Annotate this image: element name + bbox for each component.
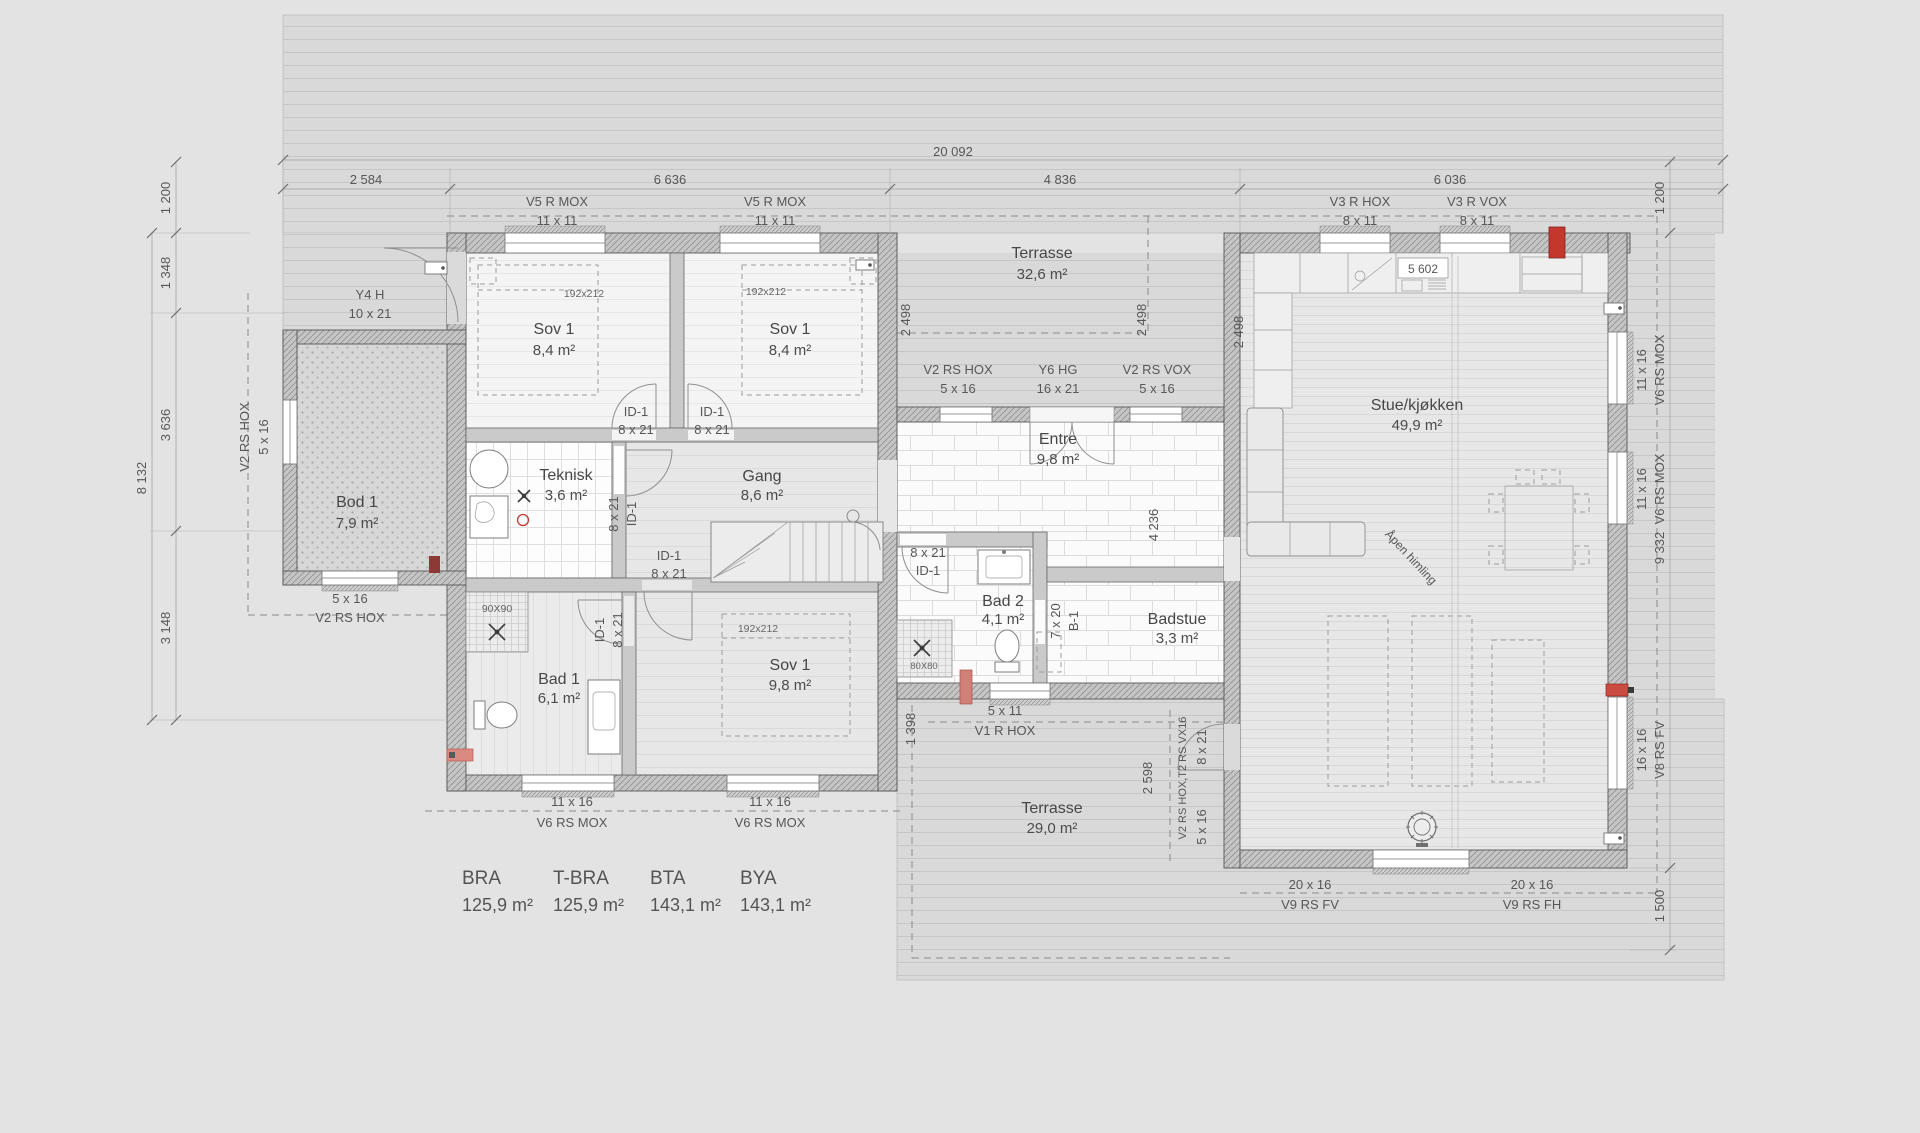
room-sov1c-name: Sov 1	[770, 657, 811, 674]
dim-left-total: 8 132	[134, 462, 149, 495]
room-sov1a-area: 8,4 m²	[533, 342, 576, 359]
label-v9fv-size: 20 x 16	[1289, 877, 1332, 892]
bed-size-sov1b: 192x212	[746, 286, 786, 298]
label-v6-1-code: V6 RS MOX	[537, 815, 608, 830]
label-t2combo-code: V2 RS HOX,T2 RS VX16	[1177, 717, 1189, 840]
label-v2hox-left-code: V2 RS HOX	[237, 402, 252, 472]
label-id1-bad2-size: 8 x 21	[910, 545, 945, 560]
sofa-bottom	[1247, 522, 1365, 556]
dim-5602: 5 602	[1408, 262, 1438, 276]
label-v5-1-size: 11 x 11	[537, 213, 578, 228]
label-v9fv-code: V9 RS FV	[1281, 897, 1339, 912]
room-stue-name: Stue/kjøkken	[1371, 397, 1463, 414]
area-table-label-bta: BTA	[650, 868, 686, 889]
label-v1-code: V1 R HOX	[975, 723, 1036, 738]
label-id1-teknisk-size: 8 x 21	[606, 496, 621, 531]
dim-left2: 1 348	[158, 257, 173, 290]
marker-red-right-wall	[1606, 684, 1628, 696]
label-id1-bad2-code: ID-1	[916, 563, 941, 578]
room-stue-area: 49,9 m²	[1392, 417, 1443, 434]
label-y4-code: Y4 H	[356, 287, 385, 302]
dim-seg2: 6 636	[654, 172, 687, 187]
label-v2hox-left-size: 5 x 16	[256, 419, 271, 454]
room-bod-name: Bod 1	[336, 494, 378, 511]
label-y6-code: Y6 HG	[1038, 362, 1077, 377]
room-bad2-name: Bad 2	[982, 593, 1024, 610]
door-b1-gap	[1035, 600, 1045, 644]
opening-gang-entre	[878, 460, 897, 532]
label-id1-teknisk-code: ID-1	[624, 502, 639, 527]
label-t2combo-size5: 5 x 16	[1194, 809, 1209, 844]
label-v3h-code: V3 R HOX	[1330, 194, 1391, 209]
room-gang-name: Gang	[742, 468, 781, 485]
area-table-value-tbra: 125,9 m²	[553, 895, 624, 915]
bed-size-sov1c: 192x212	[738, 623, 778, 635]
label-t2combo-size8: 8 x 21	[1194, 729, 1209, 764]
window-v8	[1608, 697, 1627, 789]
room-entre-area: 9,8 m²	[1037, 451, 1080, 468]
room-bad1-area: 6,1 m²	[538, 690, 581, 707]
wall-badstue-top	[1047, 567, 1224, 582]
label-id1-sov1b-code: ID-1	[700, 404, 725, 419]
label-id1-sov1a-size: 8 x 21	[618, 422, 653, 437]
wall-bedrooms-bottom	[466, 428, 878, 442]
label-id1-gang-code: ID-1	[657, 548, 682, 563]
toilet-bad2-bowl	[995, 630, 1019, 662]
teknisk-cabinet	[470, 496, 508, 538]
valve-bod	[429, 556, 440, 573]
dim-left4: 3 148	[158, 612, 173, 645]
room-entre-name: Entre	[1039, 431, 1077, 448]
label-id1-gang-size: 8 x 21	[651, 566, 686, 581]
label-v2vox-code: V2 RS VOX	[1123, 362, 1192, 377]
area-table-label-tbra: T-BRA	[553, 868, 609, 889]
label-b1-size: 7 x 20	[1048, 603, 1063, 638]
label-v9fh-code: V9 RS FH	[1503, 897, 1562, 912]
room-bad1-name: Bad 1	[538, 671, 580, 688]
dim-2498-b: 2 498	[1134, 304, 1149, 337]
room-teknisk-area: 3,6 m²	[545, 487, 588, 504]
label-v2hox-bod-size: 5 x 16	[332, 591, 367, 606]
dim-2498-a: 2 498	[898, 304, 913, 337]
label-v8-size: 16 x 16	[1634, 729, 1649, 772]
label-v6-1-size: 11 x 16	[551, 794, 593, 809]
label-v3v-size: 8 x 11	[1460, 213, 1494, 228]
area-table-label-bra: BRA	[462, 868, 501, 889]
room-badstue-name: Badstue	[1148, 611, 1207, 628]
label-v2vox-size: 5 x 16	[1139, 381, 1174, 396]
dim-seg3: 4 836	[1044, 172, 1077, 187]
label-v6-2-size: 11 x 16	[749, 794, 791, 809]
label-v3v-code: V3 R VOX	[1447, 194, 1507, 209]
wall-bod-top	[283, 330, 466, 344]
area-table-label-bya: BYA	[740, 868, 777, 889]
door-y6-gap	[1030, 407, 1114, 422]
label-v5-1-code: V5 R MOX	[526, 194, 588, 209]
label-v2hox-t-size: 5 x 16	[940, 381, 975, 396]
label-id1-bad1-code: ID-1	[592, 618, 607, 643]
door-id1-bad2-gap	[900, 534, 946, 545]
room-sov1b-name: Sov 1	[770, 321, 811, 338]
shower-80-label: 80X80	[910, 661, 937, 672]
floor-sov1c	[636, 592, 878, 775]
toilet-bad1-tank	[474, 701, 485, 729]
door-id1-gang-gap	[642, 580, 692, 590]
label-id1-sov1b-size: 8 x 21	[694, 422, 729, 437]
shower-90-label: 90X90	[482, 603, 513, 615]
wall-leftwing-bottom	[447, 775, 897, 791]
floor-corridor	[1047, 532, 1224, 567]
dim-4236: 4 236	[1146, 509, 1161, 542]
label-y4-size: 10 x 21	[349, 306, 392, 321]
dim-total-width: 20 092	[933, 144, 973, 159]
toilet-bad2-tank	[995, 662, 1019, 672]
label-v6-r2-code: V6 RS MOX	[1652, 453, 1667, 524]
label-y6-size: 16 x 21	[1037, 381, 1080, 396]
room-sov1c-area: 9,8 m²	[769, 677, 812, 694]
window-v6-right-1	[1608, 332, 1627, 404]
label-id1-bad1-size: 8 x 21	[610, 612, 625, 647]
label-v3h-size: 8 x 11	[1343, 213, 1377, 228]
floor-bod	[297, 344, 450, 571]
label-v5-2-code: V5 R MOX	[744, 194, 806, 209]
wall-rightwing-top	[1240, 233, 1630, 253]
label-v2hox-bod-code: V2 RS HOX	[315, 610, 385, 625]
label-v6-r1-size: 11 x 16	[1634, 349, 1649, 391]
label-b1-code: B-1	[1066, 611, 1081, 631]
opening-corridor-stue	[1224, 537, 1240, 581]
dim-seg1: 2 584	[350, 172, 383, 187]
label-v2hox-t-code: V2 RS HOX	[923, 362, 993, 377]
room-terrasse1-name: Terrasse	[1011, 245, 1072, 262]
room-terrasse2-name: Terrasse	[1021, 800, 1082, 817]
dim-2598: 2 598	[1140, 762, 1155, 795]
room-terrasse1-area: 32,6 m²	[1017, 266, 1068, 283]
room-gang-area: 8,6 m²	[741, 487, 784, 504]
bed-size-sov1a: 192x212	[564, 288, 604, 300]
room-terrasse2-area: 29,0 m²	[1027, 820, 1078, 837]
room-badstue-area: 3,3 m²	[1156, 630, 1199, 647]
label-v6-r1-code: V6 RS MOX	[1652, 334, 1667, 405]
window-v2hox-terrace	[940, 407, 992, 422]
dim-right1: 1 200	[1652, 182, 1667, 215]
deck-top-band	[283, 15, 1723, 233]
wall-middle-bottom	[897, 683, 1240, 699]
label-v5-2-size: 11 x 11	[755, 213, 796, 228]
window-v2vox-terrace	[1130, 407, 1182, 422]
window-v6-right-2	[1608, 452, 1627, 524]
area-table-value-bra: 125,9 m²	[462, 895, 533, 915]
label-v6-r2-size: 11 x 16	[1634, 468, 1649, 510]
area-table-value-bta: 143,1 m²	[650, 895, 721, 915]
floor-plan-drawing: 20 092 2 584 6 636 4 836 6 036 1 200 1 3…	[0, 0, 1920, 1133]
dim-seg4: 6 036	[1434, 172, 1467, 187]
shower-90-icon	[466, 592, 528, 652]
toilet-bad1-bowl	[487, 702, 517, 728]
wall-bedroom-partition	[670, 253, 684, 428]
floor-sov1b	[684, 253, 878, 428]
chimney-red	[1549, 227, 1565, 258]
door-t2-gap	[1224, 724, 1240, 770]
room-sov1a-name: Sov 1	[534, 321, 575, 338]
dim-left1: 1 200	[158, 182, 173, 215]
label-v1-size: 5 x 11	[988, 703, 1022, 718]
kitchen-counter-leg	[1254, 293, 1292, 408]
room-teknisk-name: Teknisk	[539, 467, 593, 484]
dim-right2: 9 332	[1652, 532, 1667, 565]
dim-left3: 3 636	[158, 409, 173, 442]
room-sov1b-area: 8,4 m²	[769, 342, 812, 359]
floor-plan-canvas: 20 092 2 584 6 636 4 836 6 036 1 200 1 3…	[0, 0, 1920, 1133]
door-id1-bad1-gap	[624, 596, 634, 646]
label-v9fh-size: 20 x 16	[1511, 877, 1554, 892]
dim-2498-c: 2 498	[1231, 316, 1246, 349]
area-table-value-bya: 143,1 m²	[740, 895, 811, 915]
label-v8-code: V8 RS FV	[1652, 721, 1667, 779]
label-v6-2-code: V6 RS MOX	[735, 815, 806, 830]
room-bad2-area: 4,1 m²	[982, 611, 1025, 628]
dim-1398: 1 398	[903, 713, 918, 746]
marker-red-bad2	[960, 670, 972, 704]
floor-sov1a	[466, 253, 670, 428]
label-id1-sov1a-code: ID-1	[624, 404, 649, 419]
room-bod-area: 7,9 m²	[336, 515, 379, 532]
door-id1-teknisk-gap	[614, 446, 624, 494]
dim-right3: 1 500	[1652, 890, 1667, 923]
washer-icon	[470, 450, 508, 488]
